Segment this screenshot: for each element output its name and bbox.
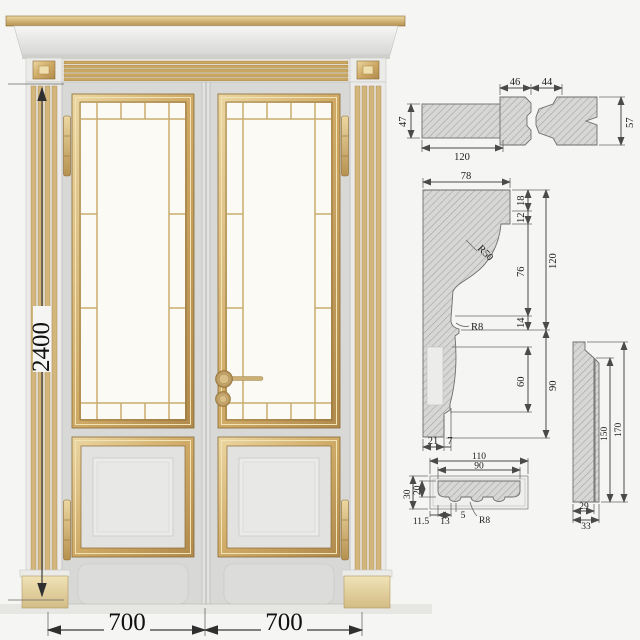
casing-dim-11-5: 11.5 [413, 517, 430, 527]
jamb-dim-44: 44 [542, 77, 553, 88]
casing-radius-r8: R8 [479, 516, 490, 526]
frieze [26, 58, 386, 82]
crown-dim-18: 18 [516, 196, 527, 207]
pilaster-right [350, 82, 386, 576]
hinge-bottom-right [342, 500, 349, 560]
hinge-top-left [64, 116, 71, 176]
casing-dim-5: 5 [461, 511, 466, 521]
casing-dim-90: 90 [474, 462, 484, 472]
crown-molding [6, 16, 405, 59]
door-technical-drawing: 2400 700 700 46 44 47 120 57 78 [0, 0, 640, 640]
section-jamb: 46 44 47 120 57 [398, 77, 636, 163]
jamb-dim-46: 46 [510, 77, 521, 88]
lower-panel-right [218, 437, 340, 557]
technical-drawing-page: 2400 700 700 46 44 47 120 57 78 [0, 0, 640, 640]
frieze-gold-reeds [64, 61, 348, 81]
kick-panel-left [78, 564, 188, 604]
plinth-profile-edge [595, 359, 599, 502]
leaf-width-right-label: 700 [265, 609, 303, 636]
casing-dim-13: 13 [440, 517, 450, 527]
crown-dim-78: 78 [461, 171, 472, 182]
door-height-label: 2400 [28, 322, 55, 372]
lever-handle [229, 377, 263, 381]
casing-dim-20: 20 [413, 485, 423, 495]
plinth-block-right [344, 576, 390, 608]
plinth-dim-170: 170 [614, 423, 624, 438]
crown-dim-14: 14 [516, 317, 527, 328]
casing-dim-30: 30 [403, 489, 413, 499]
door-leaf-section [536, 97, 597, 145]
crown-dim-12: 12 [516, 213, 527, 224]
crown-dim-7: 7 [447, 436, 452, 447]
hinge-bottom-left [64, 500, 71, 560]
casing-dim-110: 110 [472, 452, 486, 462]
rosette-left-facet [39, 66, 49, 74]
crown-profile-groove [427, 347, 443, 405]
door-elevation [0, 16, 432, 614]
jamb-dim-47: 47 [398, 117, 409, 128]
crown-dim-90: 90 [548, 381, 559, 392]
crown-dim-21: 21 [428, 436, 439, 447]
leaf-width-left-label: 700 [108, 609, 146, 636]
kick-panel-right [224, 564, 334, 604]
jamb-dim-120: 120 [454, 152, 470, 163]
jamb-casing-board [422, 104, 503, 138]
section-crown: 78 18 12 76 14 120 60 90 R50 R8 21 7 [423, 171, 559, 451]
jamb-block [500, 97, 531, 145]
plinth-dim-150: 150 [600, 427, 610, 442]
plinth-dim-29: 29 [579, 502, 589, 512]
crown-dim-120: 120 [548, 253, 559, 269]
plinth-profile-main [573, 342, 594, 502]
crown-dim-76: 76 [516, 267, 527, 278]
plinth-block-left [22, 576, 68, 608]
section-casing: 110 90 30 20 11.5 13 5 R8 [403, 452, 528, 527]
rosette-right-facet [363, 66, 373, 74]
cornice-cove [14, 26, 398, 55]
hinge-top-right [342, 116, 349, 176]
glazed-panel-left [72, 94, 194, 428]
cornice-base-strip [22, 55, 390, 59]
section-plinth: 150 170 29 33 [573, 342, 628, 532]
crown-radius-r8: R8 [471, 322, 483, 333]
plinth-dim-33: 33 [581, 522, 591, 532]
lower-panel-left [72, 437, 194, 557]
jamb-dim-57: 57 [625, 118, 636, 129]
cornice-gold-band [6, 16, 405, 26]
crown-dim-60: 60 [516, 377, 527, 388]
